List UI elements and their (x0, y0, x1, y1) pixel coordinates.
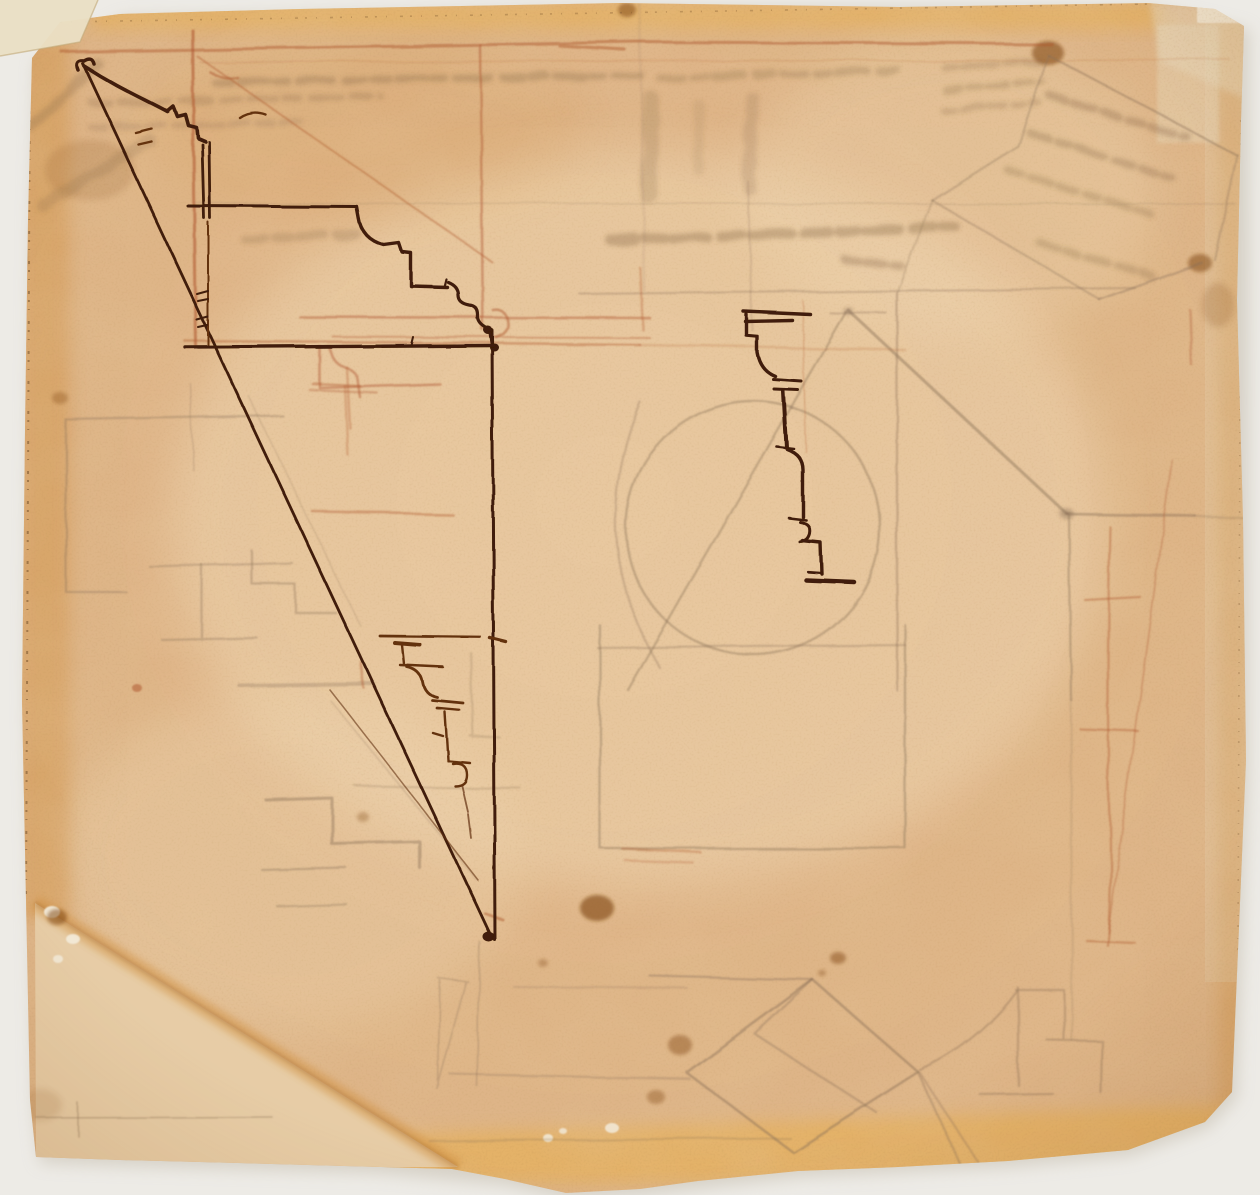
manuscript-sheet (0, 0, 1260, 1195)
drawing-canvas (0, 0, 1260, 1195)
photo-vignette (0, 0, 1260, 1195)
photograph-of-drawing (0, 0, 1260, 1195)
